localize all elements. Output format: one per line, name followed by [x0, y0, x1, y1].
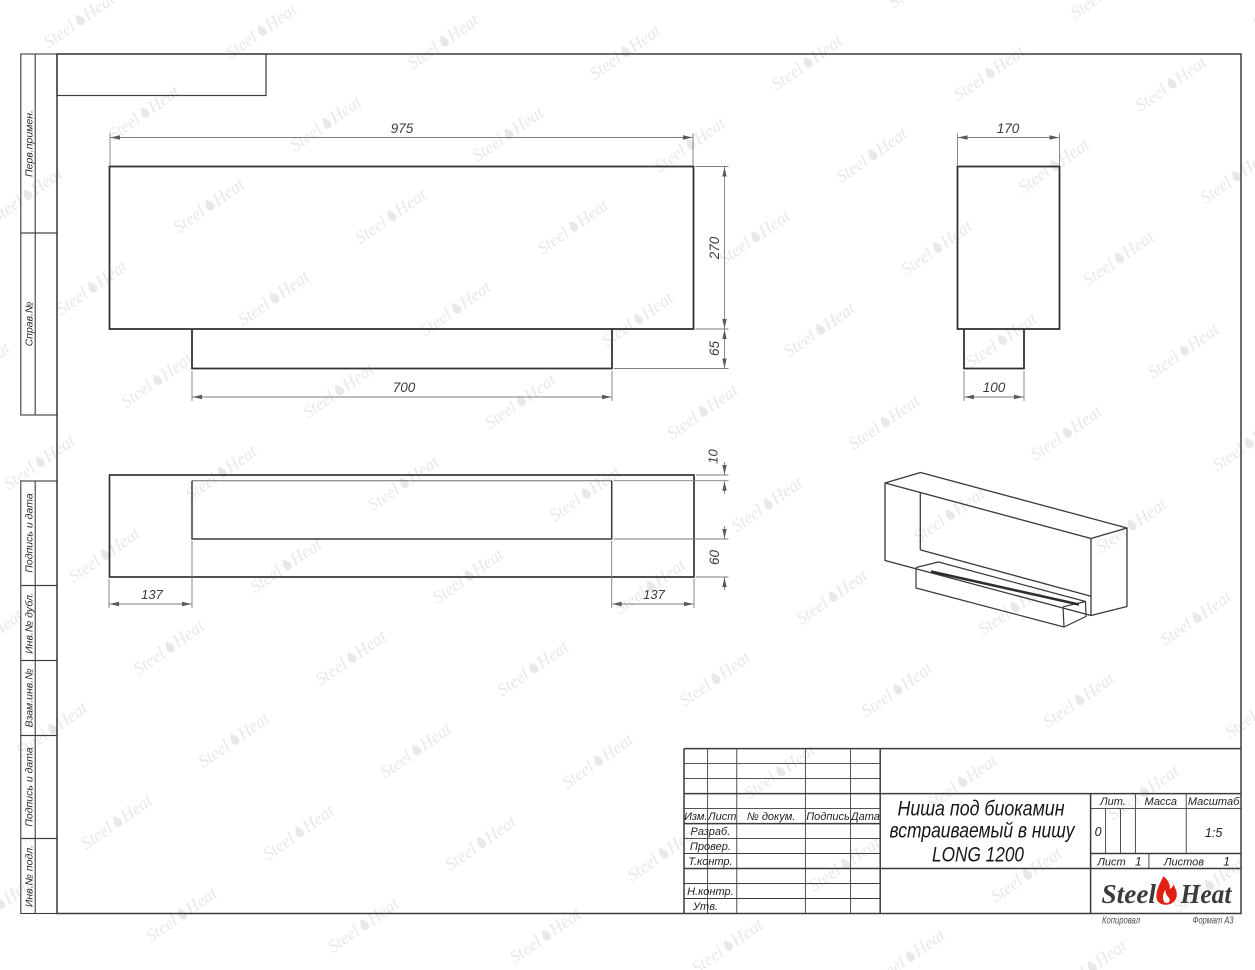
svg-text:170: 170	[997, 121, 1020, 136]
svg-text:10: 10	[706, 449, 721, 464]
svg-text:Подпись: Подпись	[806, 811, 850, 823]
svg-text:1: 1	[1135, 855, 1142, 869]
svg-text:Инв.№ подл.: Инв.№ подл.	[24, 845, 36, 907]
svg-text:Взам.инв.№: Взам.инв.№	[24, 668, 36, 727]
svg-text:Справ.№: Справ.№	[24, 302, 36, 347]
svg-text:Н.контр.: Н.контр.	[687, 886, 734, 898]
svg-text:№ докум.: № докум.	[747, 811, 795, 823]
svg-text:Лист: Лист	[707, 811, 736, 823]
svg-text:Подпись и дата: Подпись и дата	[24, 747, 36, 827]
svg-text:Провер.: Провер.	[690, 841, 731, 853]
svg-text:Масса: Масса	[1145, 796, 1178, 808]
svg-text:60: 60	[707, 550, 722, 566]
svg-text:65: 65	[707, 341, 722, 357]
svg-text:137: 137	[643, 587, 665, 602]
svg-text:Инв.№ дубл.: Инв.№ дубл.	[24, 592, 36, 654]
svg-text:Утв.: Утв.	[692, 901, 718, 913]
svg-text:0: 0	[1095, 825, 1102, 839]
svg-text:Ниша под биокамин: Ниша под биокамин	[898, 798, 1065, 821]
svg-text:100: 100	[983, 380, 1006, 395]
svg-text:270: 270	[707, 236, 722, 260]
svg-text:Перв.примен.: Перв.примен.	[24, 110, 36, 177]
svg-text:137: 137	[141, 587, 163, 602]
svg-text:LONG 1200: LONG 1200	[932, 844, 1024, 867]
svg-text:Разраб.: Разраб.	[690, 826, 730, 838]
svg-text:Дата: Дата	[849, 811, 880, 823]
svg-text:Масштаб: Масштаб	[1188, 796, 1240, 808]
svg-text:1:5: 1:5	[1205, 826, 1222, 840]
svg-text:Копировал: Копировал	[1102, 916, 1140, 927]
svg-text:700: 700	[393, 380, 416, 395]
svg-text:Изм.: Изм.	[684, 811, 707, 823]
svg-text:975: 975	[391, 121, 414, 136]
svg-text:Т.контр.: Т.контр.	[688, 856, 732, 868]
svg-text:Heat: Heat	[1180, 879, 1233, 909]
svg-text:Лит.: Лит.	[1099, 796, 1126, 808]
svg-text:1: 1	[1223, 855, 1230, 869]
svg-text:Формат А3: Формат А3	[1193, 916, 1234, 927]
svg-text:Steel: Steel	[1102, 879, 1157, 909]
svg-text:Подпись и дата: Подпись и дата	[24, 493, 36, 573]
svg-text:встраиваемый в нишу: встраиваемый в нишу	[890, 820, 1076, 843]
svg-text:Листов: Листов	[1163, 857, 1204, 869]
svg-text:Лист: Лист	[1096, 857, 1125, 869]
